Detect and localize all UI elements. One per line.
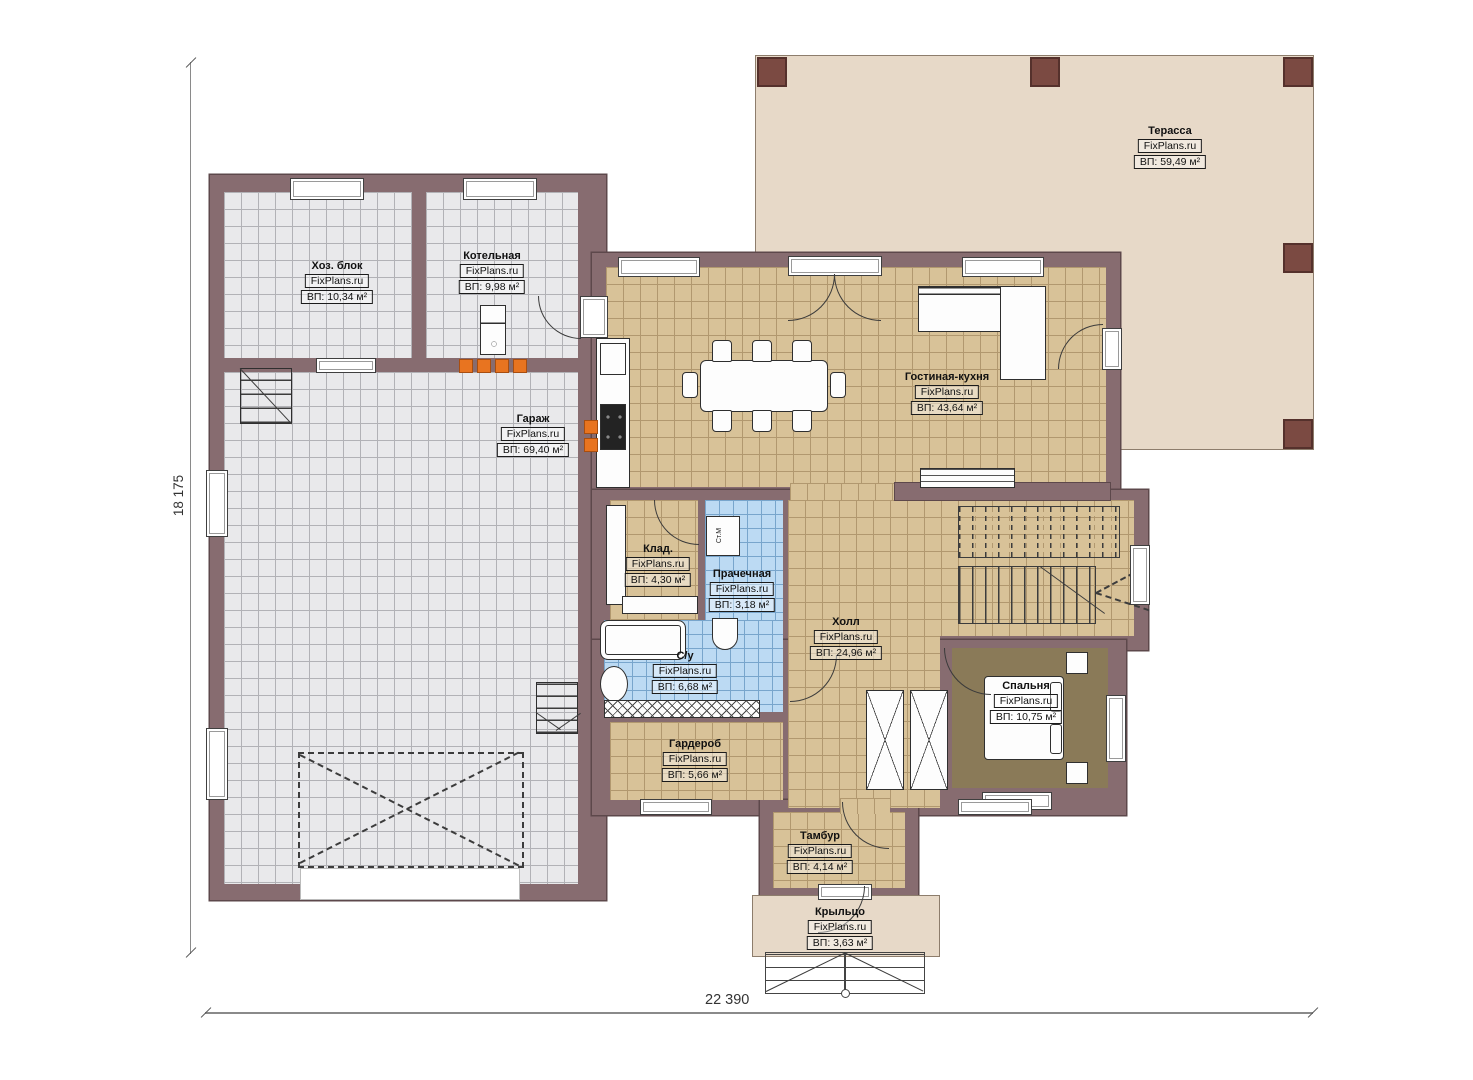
brand-watermark: FixPlans.ru [501, 427, 566, 441]
room-label-terrace: Терасса FixPlans.ru ВП: 59,49 м² [1134, 125, 1206, 169]
door-opening [580, 296, 608, 338]
brand-watermark: FixPlans.ru [305, 274, 370, 288]
garage-door-opening [300, 868, 520, 900]
dimension-tick [186, 57, 197, 68]
door-opening [316, 358, 376, 373]
dimension-width-label: 22 390 [705, 992, 749, 1008]
window [962, 257, 1044, 277]
terrace-post [1283, 57, 1313, 87]
window [1106, 695, 1126, 762]
hall-closet [910, 690, 948, 790]
room-area: ВП: 4,30 м² [625, 573, 691, 587]
room-name: Гардероб [662, 738, 728, 750]
washing-machine-label: Ст.М [716, 528, 723, 543]
chair [752, 410, 772, 432]
window [958, 799, 1032, 815]
terrace-post [1030, 57, 1060, 87]
chair [682, 372, 698, 398]
room-name: Холл [810, 616, 882, 628]
chair [792, 340, 812, 362]
room-label-porch: Крыльцо FixPlans.ru ВП: 3,63 м² [807, 906, 873, 950]
window [463, 178, 537, 200]
room-label-laundry: Прачечная FixPlans.ru ВП: 3,18 м² [709, 568, 775, 612]
terrace-post [1283, 243, 1313, 273]
room-label-bath: С/у FixPlans.ru ВП: 6,68 м² [652, 650, 718, 694]
room-name: Прачечная [709, 568, 775, 580]
radiator [584, 420, 598, 434]
brand-watermark: FixPlans.ru [994, 694, 1059, 708]
dimension-tick [186, 947, 197, 958]
room-area: ВП: 69,40 м² [497, 443, 569, 457]
brand-watermark: FixPlans.ru [788, 844, 853, 858]
tv-console [920, 468, 1015, 488]
brand-watermark: FixPlans.ru [460, 264, 525, 278]
room-label-wardrobe: Гардероб FixPlans.ru ВП: 5,66 м² [662, 738, 728, 782]
room-name: Хоз. блок [301, 260, 373, 272]
radiator [477, 359, 491, 373]
room-label-hozblok: Хоз. блок FixPlans.ru ВП: 10,34 м² [301, 260, 373, 304]
terrace-door-opening [788, 256, 882, 276]
room-area: ВП: 24,96 м² [810, 646, 882, 660]
radiator [459, 359, 473, 373]
toilet [712, 618, 738, 650]
room-name: Гараж [497, 413, 569, 425]
storage-shelf [622, 596, 698, 614]
kitchen-sink [600, 343, 626, 375]
terrace-post [757, 57, 787, 87]
brand-watermark: FixPlans.ru [814, 630, 879, 644]
window [290, 178, 364, 200]
room-name: С/у [652, 650, 718, 662]
chair [830, 372, 846, 398]
sofa-chaise [1000, 286, 1046, 380]
dimension-line-vertical [190, 62, 191, 954]
room-name: Терасса [1134, 125, 1206, 137]
room-area: ВП: 10,75 м² [990, 710, 1062, 724]
room-name: Тамбур [787, 830, 853, 842]
room-name: Спальня [990, 680, 1062, 692]
porch-handrail [844, 952, 846, 992]
room-label-living: Гостиная-кухня FixPlans.ru ВП: 43,64 м² [905, 371, 989, 415]
terrace-post [1283, 419, 1313, 449]
stairs-upper-flight [958, 506, 1120, 558]
room-name: Котельная [459, 250, 525, 262]
room-area: ВП: 59,49 м² [1134, 155, 1206, 169]
room-name: Крыльцо [807, 906, 873, 918]
brand-watermark: FixPlans.ru [808, 920, 873, 934]
bath-sink [600, 666, 628, 702]
radiator [584, 438, 598, 452]
dimension-line-horizontal [205, 1012, 1313, 1014]
brand-watermark: FixPlans.ru [915, 385, 980, 399]
radiator [513, 359, 527, 373]
bath-cabinet [604, 700, 760, 718]
nightstand [1066, 652, 1088, 674]
room-label-garage: Гараж FixPlans.ru ВП: 69,40 м² [497, 413, 569, 457]
room-area: ВП: 3,18 м² [709, 598, 775, 612]
room-label-bedroom: Спальня FixPlans.ru ВП: 10,75 м² [990, 680, 1062, 724]
porch-handrail-knob [841, 989, 850, 998]
pillow [1050, 724, 1062, 754]
brand-watermark: FixPlans.ru [710, 582, 775, 596]
floor-plan: 18 175 22 390 [0, 0, 1473, 1080]
nightstand [1066, 762, 1088, 784]
room-area: ВП: 5,66 м² [662, 768, 728, 782]
terrace-side-door [1102, 328, 1122, 370]
room-label-storage: Клад. FixPlans.ru ВП: 4,30 м² [625, 543, 691, 587]
room-area: ВП: 43,64 м² [911, 401, 983, 415]
window [640, 799, 712, 815]
chair [712, 410, 732, 432]
boiler-unit [480, 305, 506, 355]
brand-watermark: FixPlans.ru [653, 664, 718, 678]
storage-shelf [606, 505, 626, 605]
room-label-tambur: Тамбур FixPlans.ru ВП: 4,14 м² [787, 830, 853, 874]
room-area: ВП: 3,63 м² [807, 936, 873, 950]
room-area: ВП: 4,14 м² [787, 860, 853, 874]
radiator [495, 359, 509, 373]
kitchen-stove [600, 404, 626, 450]
brand-watermark: FixPlans.ru [1138, 139, 1203, 153]
room-name: Клад. [625, 543, 691, 555]
chair [752, 340, 772, 362]
brand-watermark: FixPlans.ru [626, 557, 691, 571]
stairs-lower-flight [958, 566, 1096, 624]
window [618, 257, 700, 277]
window [206, 470, 228, 537]
hall-closet [866, 690, 904, 790]
dining-table [700, 360, 828, 412]
room-area: ВП: 9,98 м² [459, 280, 525, 294]
dimension-height-label: 18 175 [171, 475, 186, 516]
window [1130, 545, 1150, 605]
room-area: ВП: 6,68 м² [652, 680, 718, 694]
brand-watermark: FixPlans.ru [663, 752, 728, 766]
chair [712, 340, 732, 362]
room-label-boiler: Котельная FixPlans.ru ВП: 9,98 м² [459, 250, 525, 294]
chair [792, 410, 812, 432]
room-area: ВП: 10,34 м² [301, 290, 373, 304]
room-label-hall: Холл FixPlans.ru ВП: 24,96 м² [810, 616, 882, 660]
window [206, 728, 228, 800]
room-name: Гостиная-кухня [905, 371, 989, 383]
